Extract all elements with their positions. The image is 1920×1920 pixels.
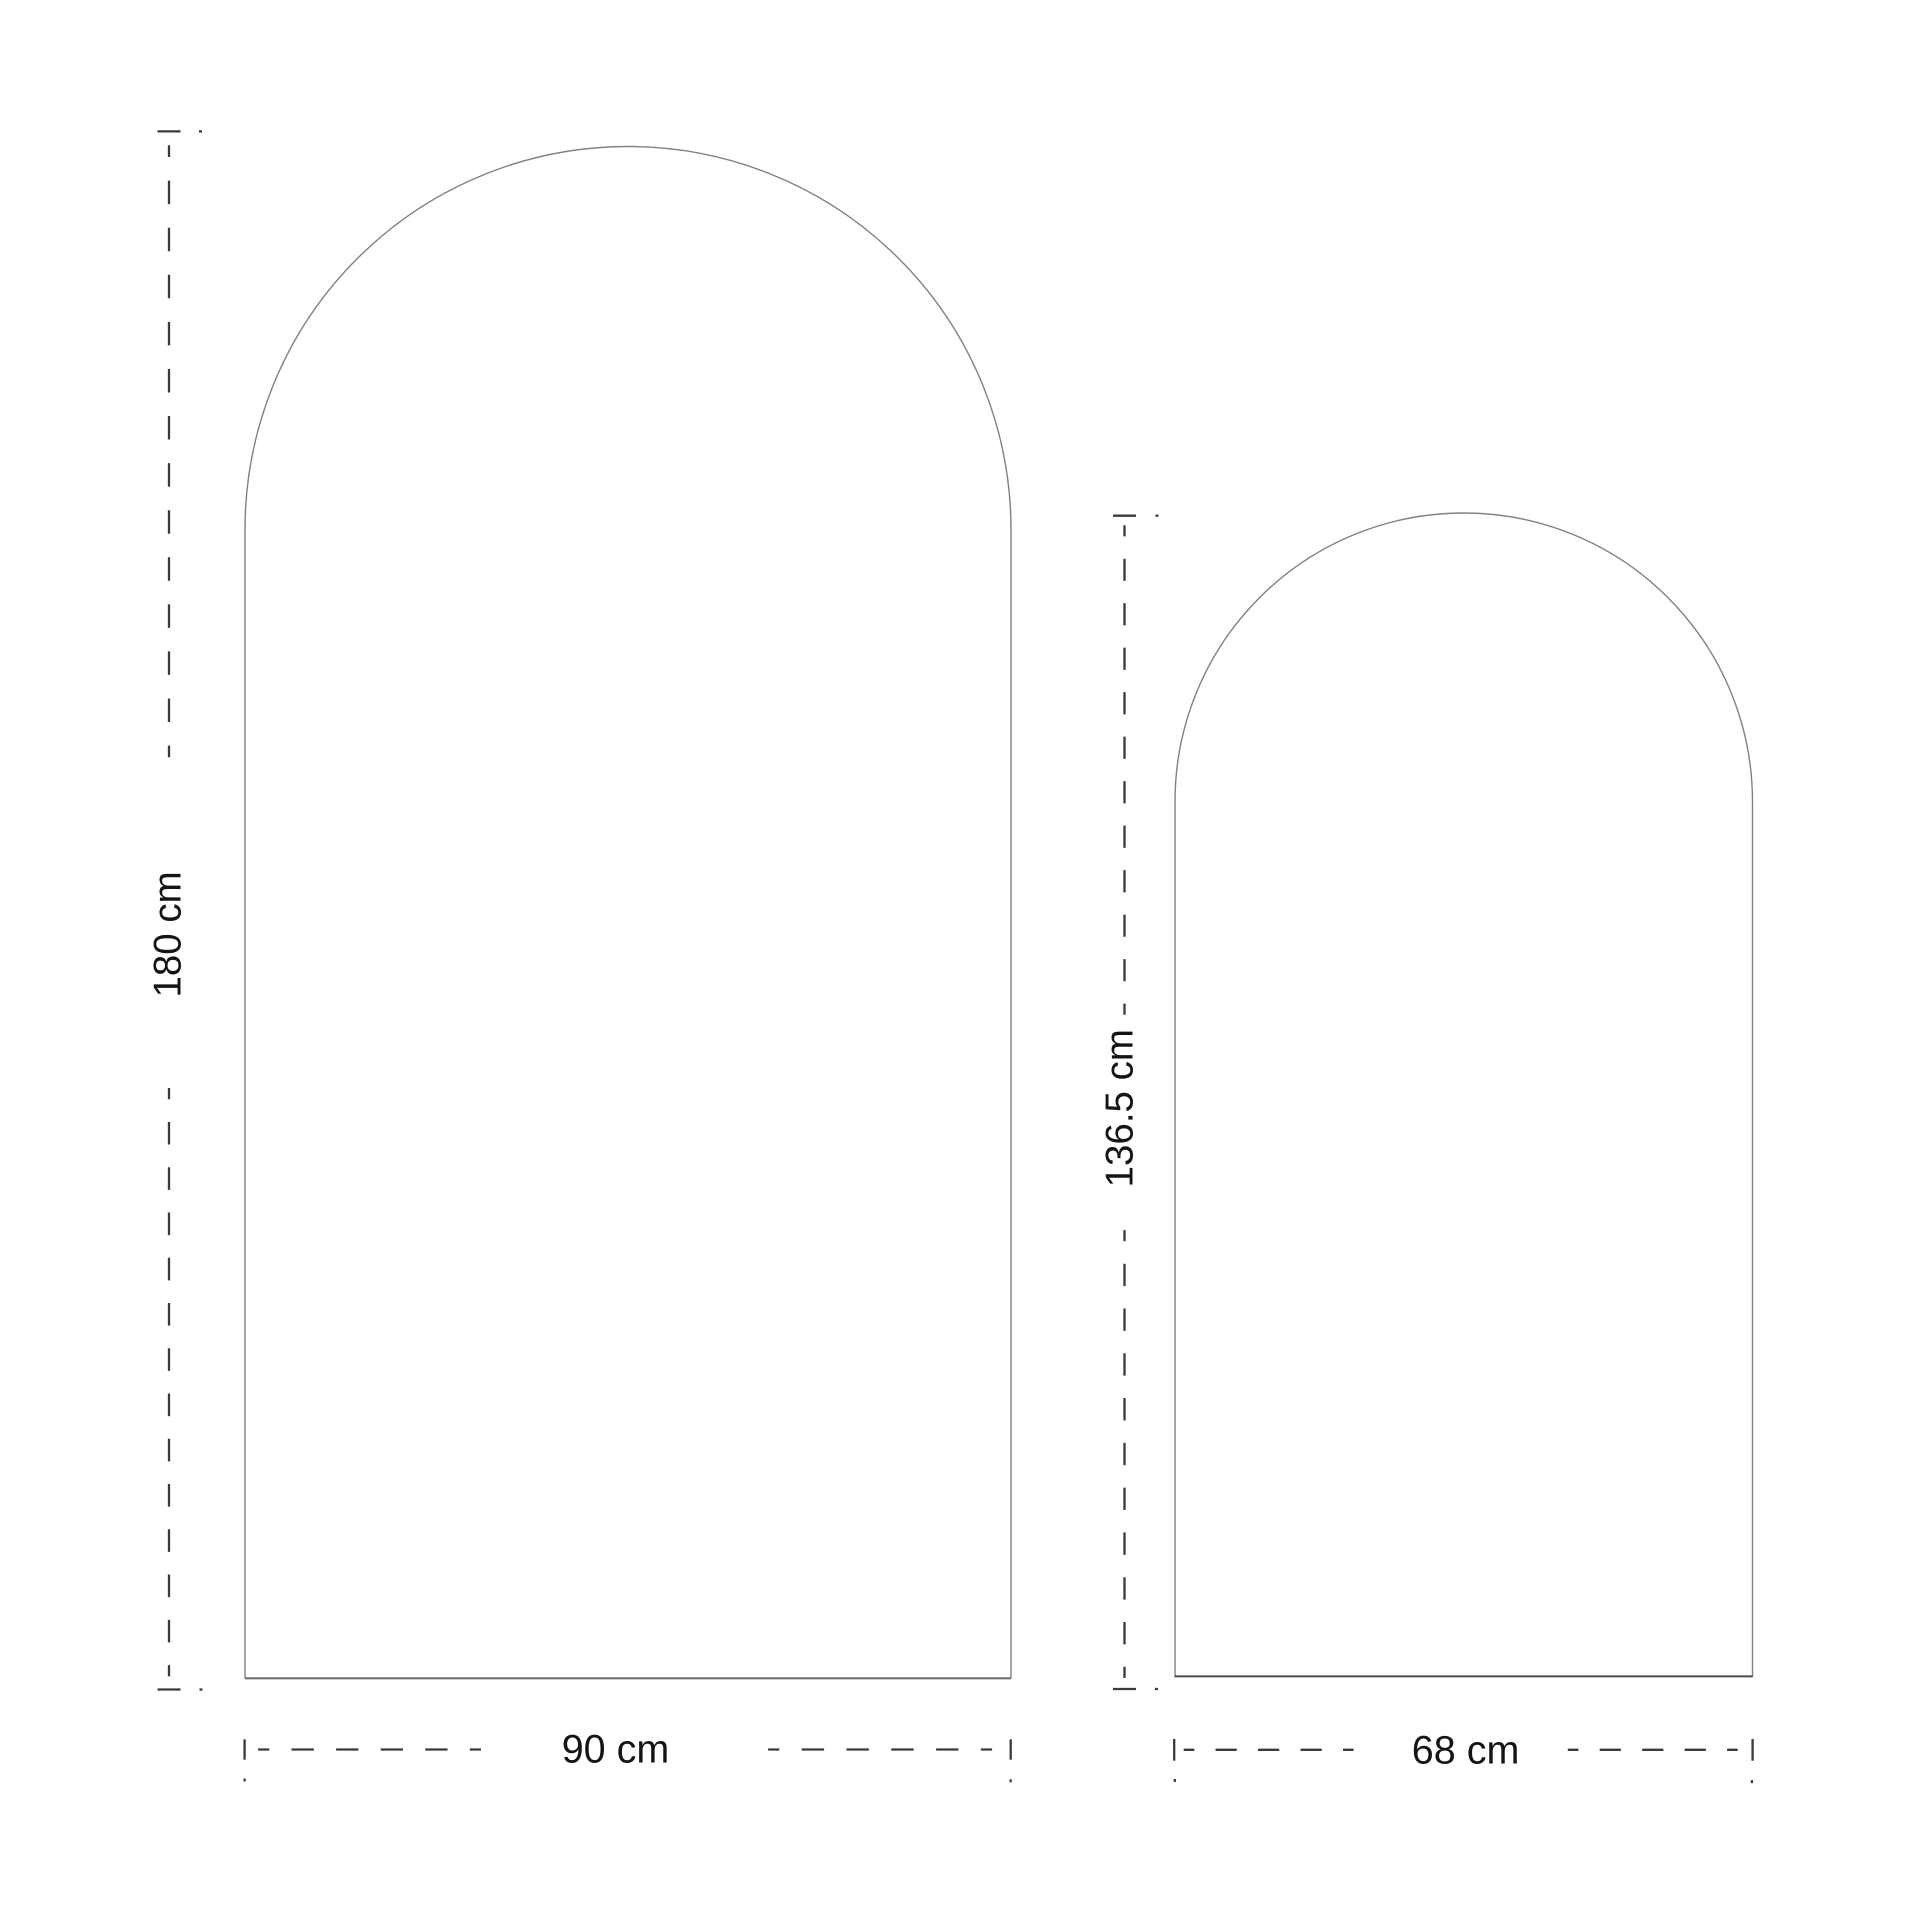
svg-text:136.5 cm: 136.5 cm: [1099, 1029, 1142, 1187]
svg-text:68 cm: 68 cm: [1412, 1728, 1520, 1772]
svg-text:180 cm: 180 cm: [147, 871, 190, 997]
svg-text:90 cm: 90 cm: [562, 1728, 670, 1772]
